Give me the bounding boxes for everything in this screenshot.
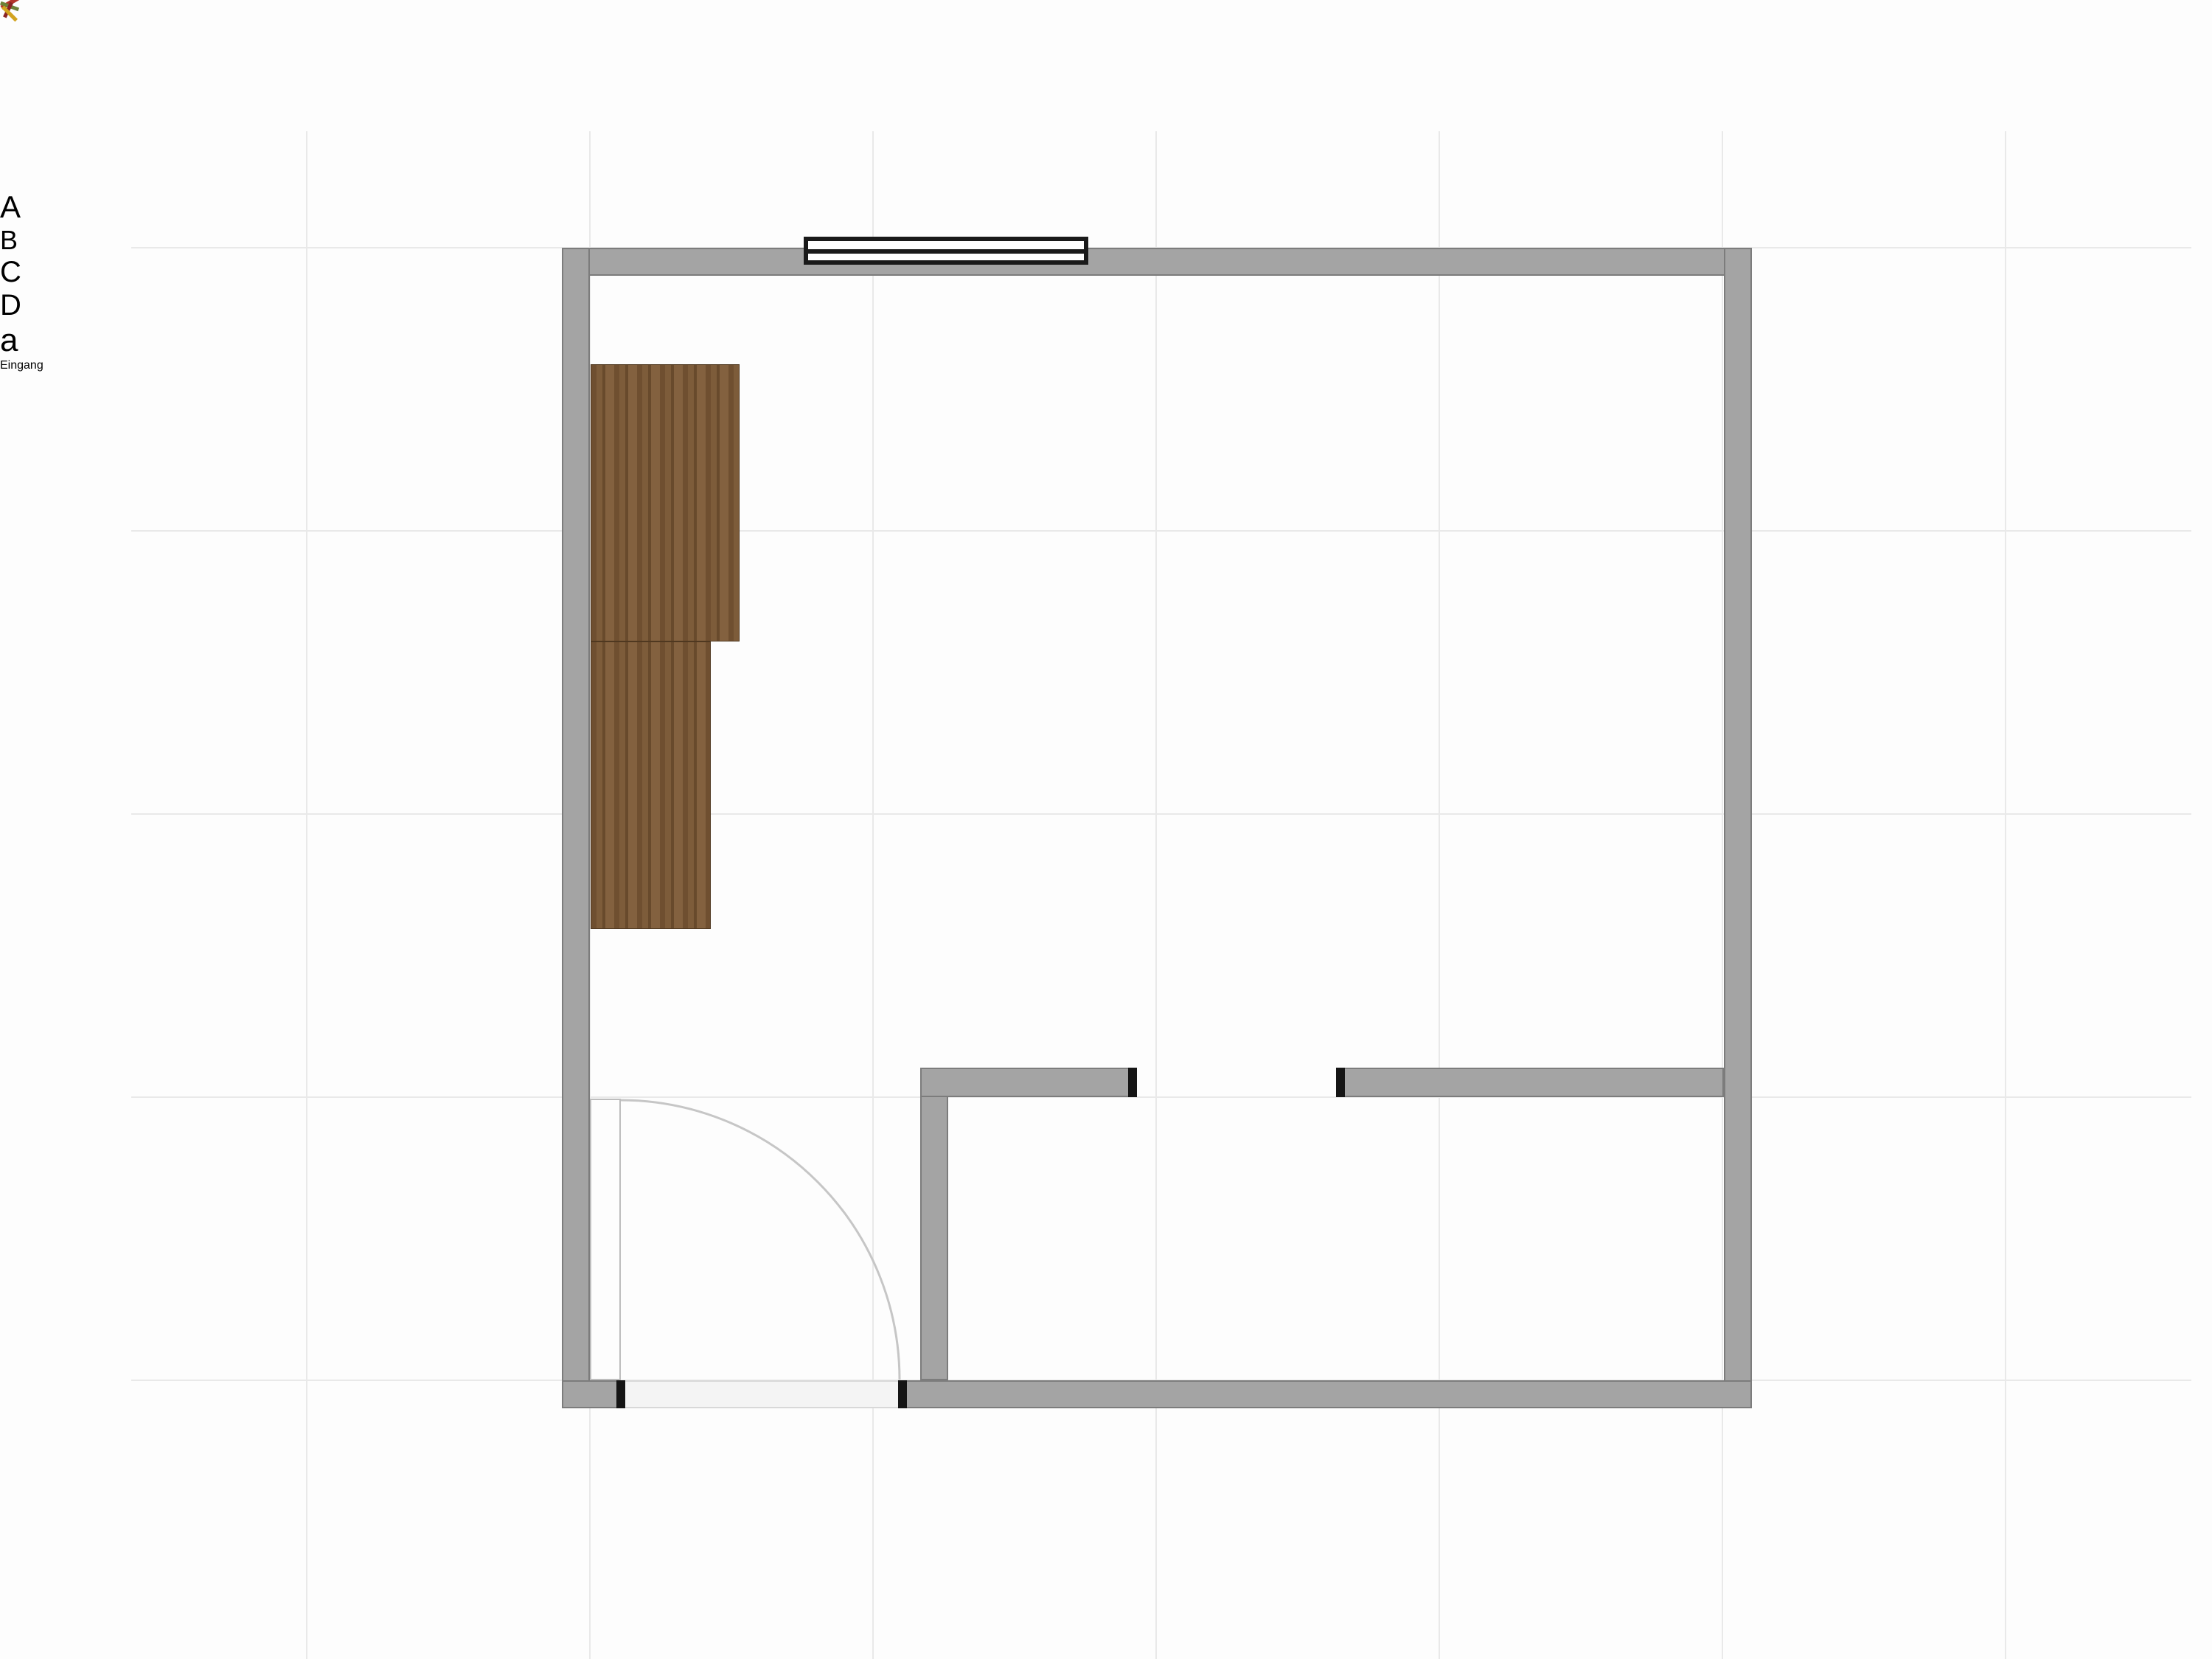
wall-label-b-top: B	[0, 225, 28, 256]
entrance-opening	[625, 1380, 898, 1408]
wall-label-c-right: C	[0, 256, 28, 289]
bathroom-partition-wall-right[interactable]	[1336, 1068, 1724, 1097]
bathroom-doorway-jamb-left	[1128, 1068, 1137, 1097]
grid-line-horizontal	[131, 813, 2191, 815]
entrance-jamb-right	[898, 1380, 907, 1408]
wall-label-d-bottom: D	[0, 289, 32, 322]
window-mullion	[808, 249, 1084, 254]
bathroom-partition-wall-vertical[interactable]	[920, 1068, 948, 1380]
entrance-door-leaf[interactable]	[590, 1099, 621, 1380]
grid-line-horizontal	[131, 1096, 2191, 1098]
nightstand-top[interactable]	[0, 15, 88, 100]
bathroom-doorway-jamb-right	[1336, 1068, 1345, 1097]
grid-line-vertical	[1439, 131, 1440, 1659]
bathroom-partition-wall-left[interactable]	[920, 1068, 1137, 1097]
grid-line-vertical	[306, 131, 307, 1659]
entrance-label: Eingang	[0, 359, 2212, 372]
grid-line-vertical	[1155, 131, 1157, 1659]
window[interactable]	[804, 237, 1088, 265]
wall-left[interactable]	[562, 248, 590, 1408]
wall-right[interactable]	[1724, 248, 1752, 1408]
grid-line-vertical	[872, 131, 874, 1659]
nightstand-bottom[interactable]	[0, 100, 87, 189]
grid-line-vertical	[1722, 131, 1723, 1659]
wardrobe[interactable]	[591, 364, 740, 641]
desk[interactable]	[591, 641, 711, 929]
grid-line-vertical	[2005, 131, 2006, 1659]
floor-plan: A B C D a Eingang	[0, 0, 2212, 1659]
wall-top[interactable]	[562, 248, 1752, 276]
wall-label-a-bathroom: a	[0, 322, 28, 359]
grid-line-horizontal	[131, 530, 2191, 532]
wall-label-a-left: A	[0, 189, 28, 225]
entrance-jamb-left	[616, 1380, 625, 1408]
